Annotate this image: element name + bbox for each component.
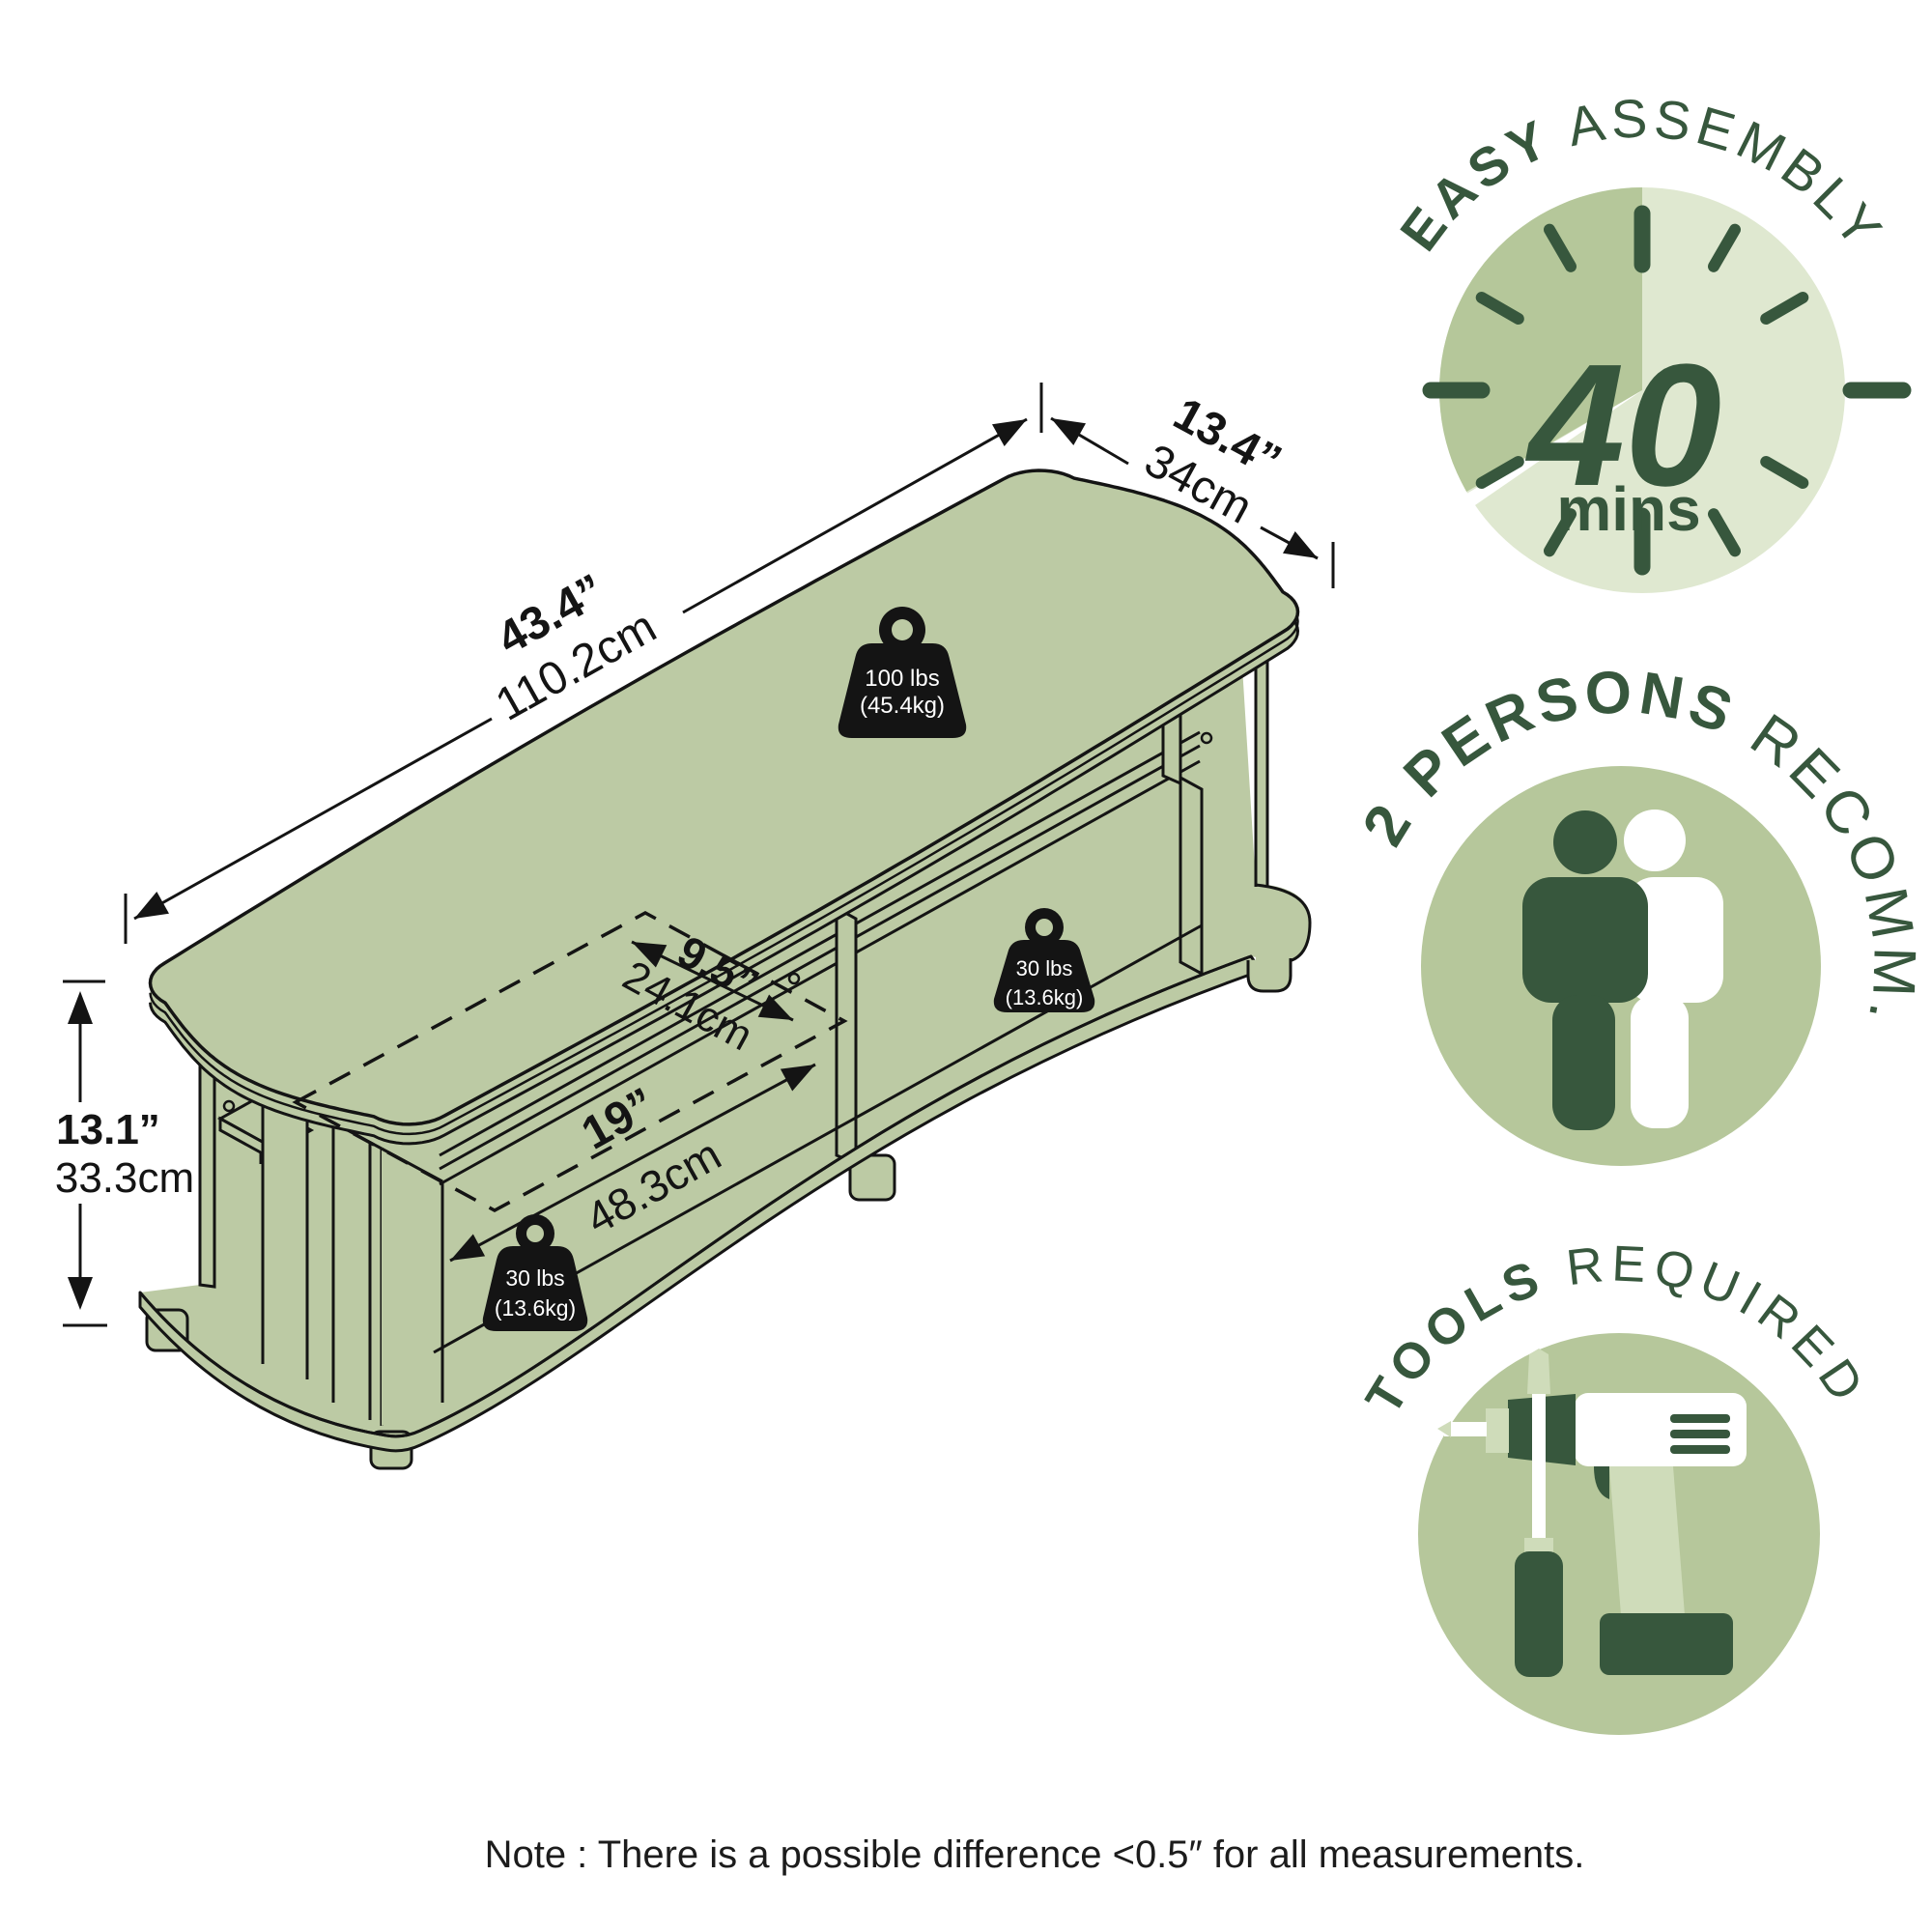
svg-text:30 lbs: 30 lbs <box>505 1265 564 1291</box>
svg-text:33.3cm: 33.3cm <box>55 1154 194 1202</box>
svg-text:(45.4kg): (45.4kg) <box>860 693 945 719</box>
svg-text:(13.6kg): (13.6kg) <box>495 1295 576 1321</box>
svg-text:Note : There is a possible dif: Note : There is a possible difference <0… <box>485 1833 1585 1876</box>
svg-text:mins: mins <box>1556 474 1700 544</box>
svg-text:100 lbs: 100 lbs <box>865 666 939 692</box>
svg-text:(13.6kg): (13.6kg) <box>1006 985 1084 1009</box>
svg-text:13.1”: 13.1” <box>56 1106 160 1153</box>
svg-text:30 lbs: 30 lbs <box>1016 956 1073 980</box>
